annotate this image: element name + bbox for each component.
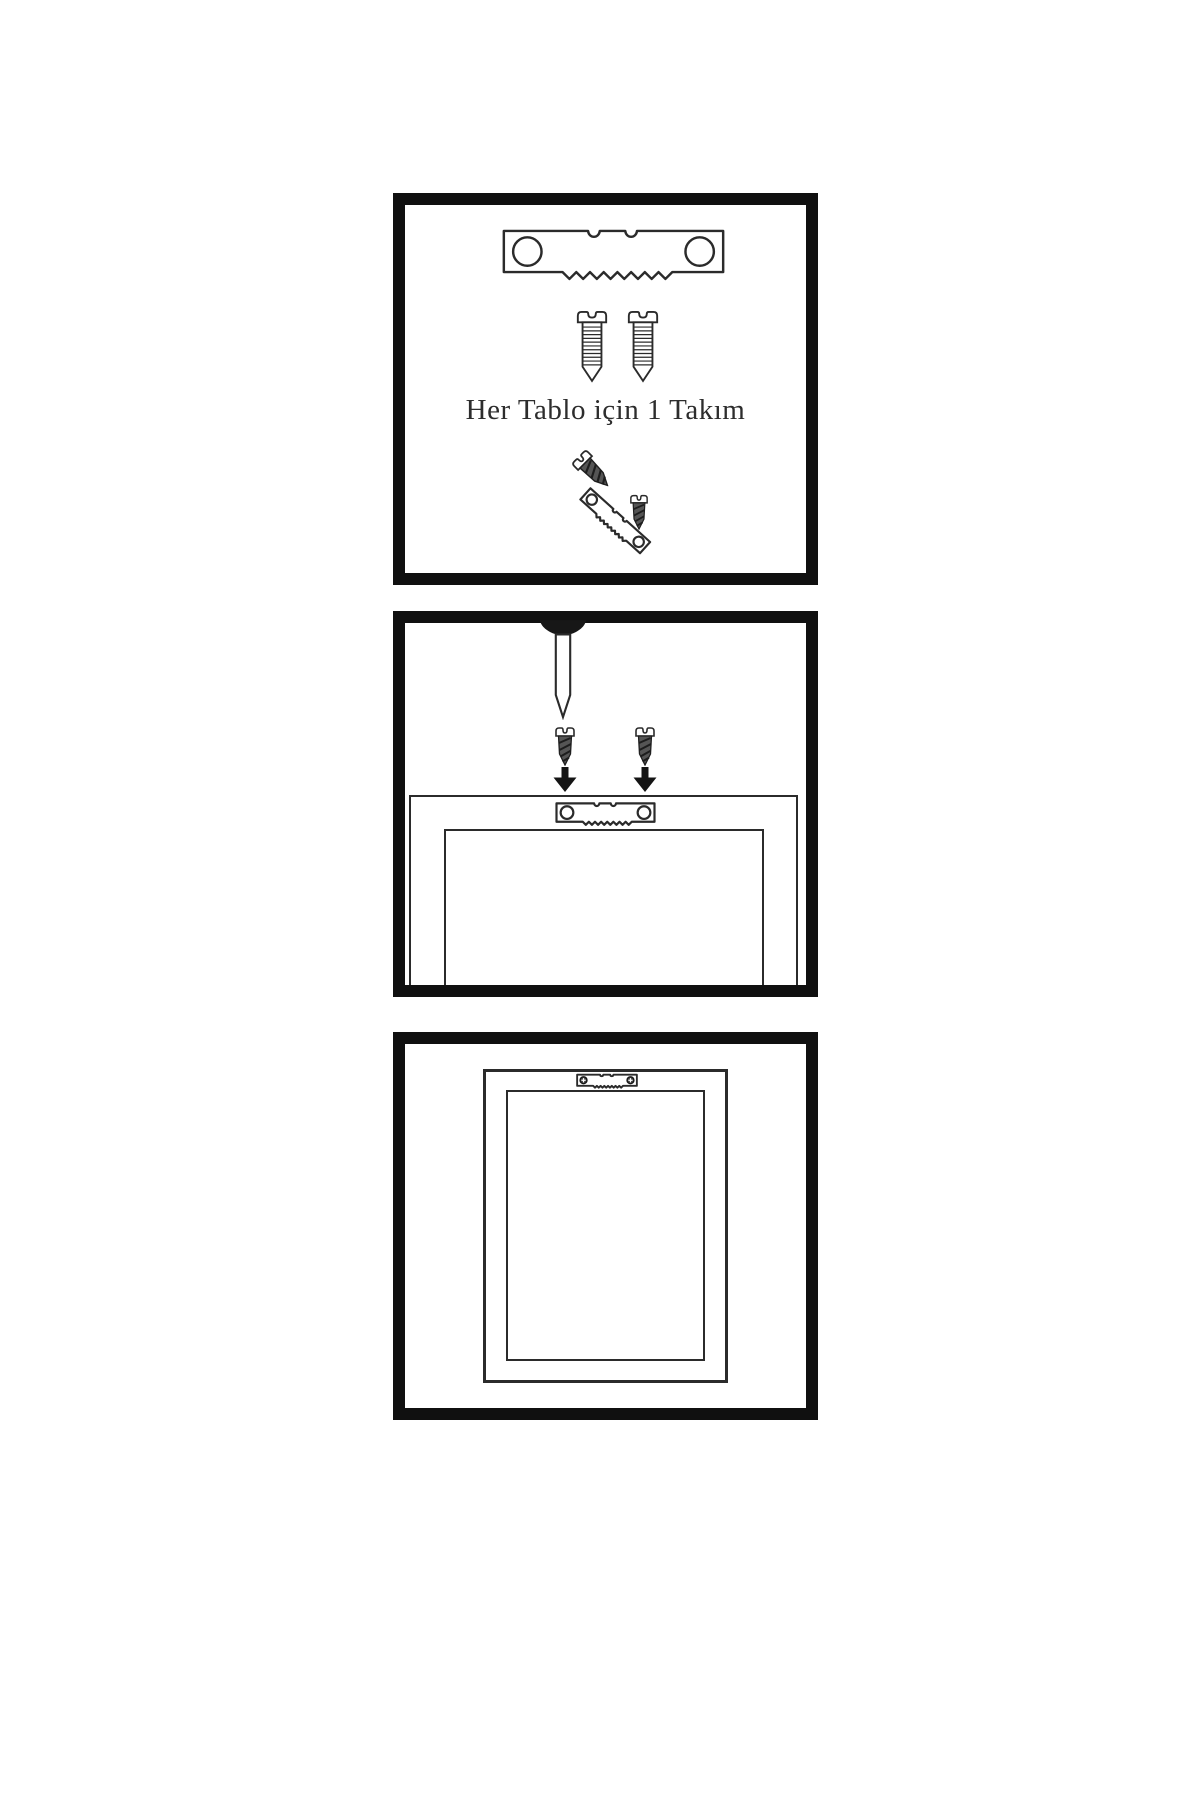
screw-dark-icon: [629, 492, 649, 530]
screw-dark-icon: [634, 724, 656, 766]
step3-panel: [393, 1032, 818, 1420]
arrow-down-icon: [553, 767, 577, 792]
arrow-down-icon: [633, 767, 657, 792]
screw-icon: [575, 306, 609, 384]
step1-caption: Her Tablo için 1 Takım: [405, 394, 806, 427]
sawtooth-hanger-icon: [496, 224, 731, 281]
screw-dark-icon: [554, 724, 576, 766]
instruction-sheet: Her Tablo için 1 Takım: [0, 0, 1200, 1800]
sawtooth-hanger-mounted-icon: [575, 1071, 639, 1090]
wall-nail-icon: [539, 620, 587, 720]
screw-icon: [626, 306, 660, 384]
frame-back-inner: [444, 829, 764, 985]
sawtooth-hanger-on-frame-icon: [553, 800, 658, 826]
step1-panel: Her Tablo için 1 Takım: [393, 193, 818, 585]
frame-back-inner: [506, 1090, 705, 1361]
step2-panel: [393, 611, 818, 997]
brand-logo: ENK WALL ART: [0, 1480, 1200, 1660]
